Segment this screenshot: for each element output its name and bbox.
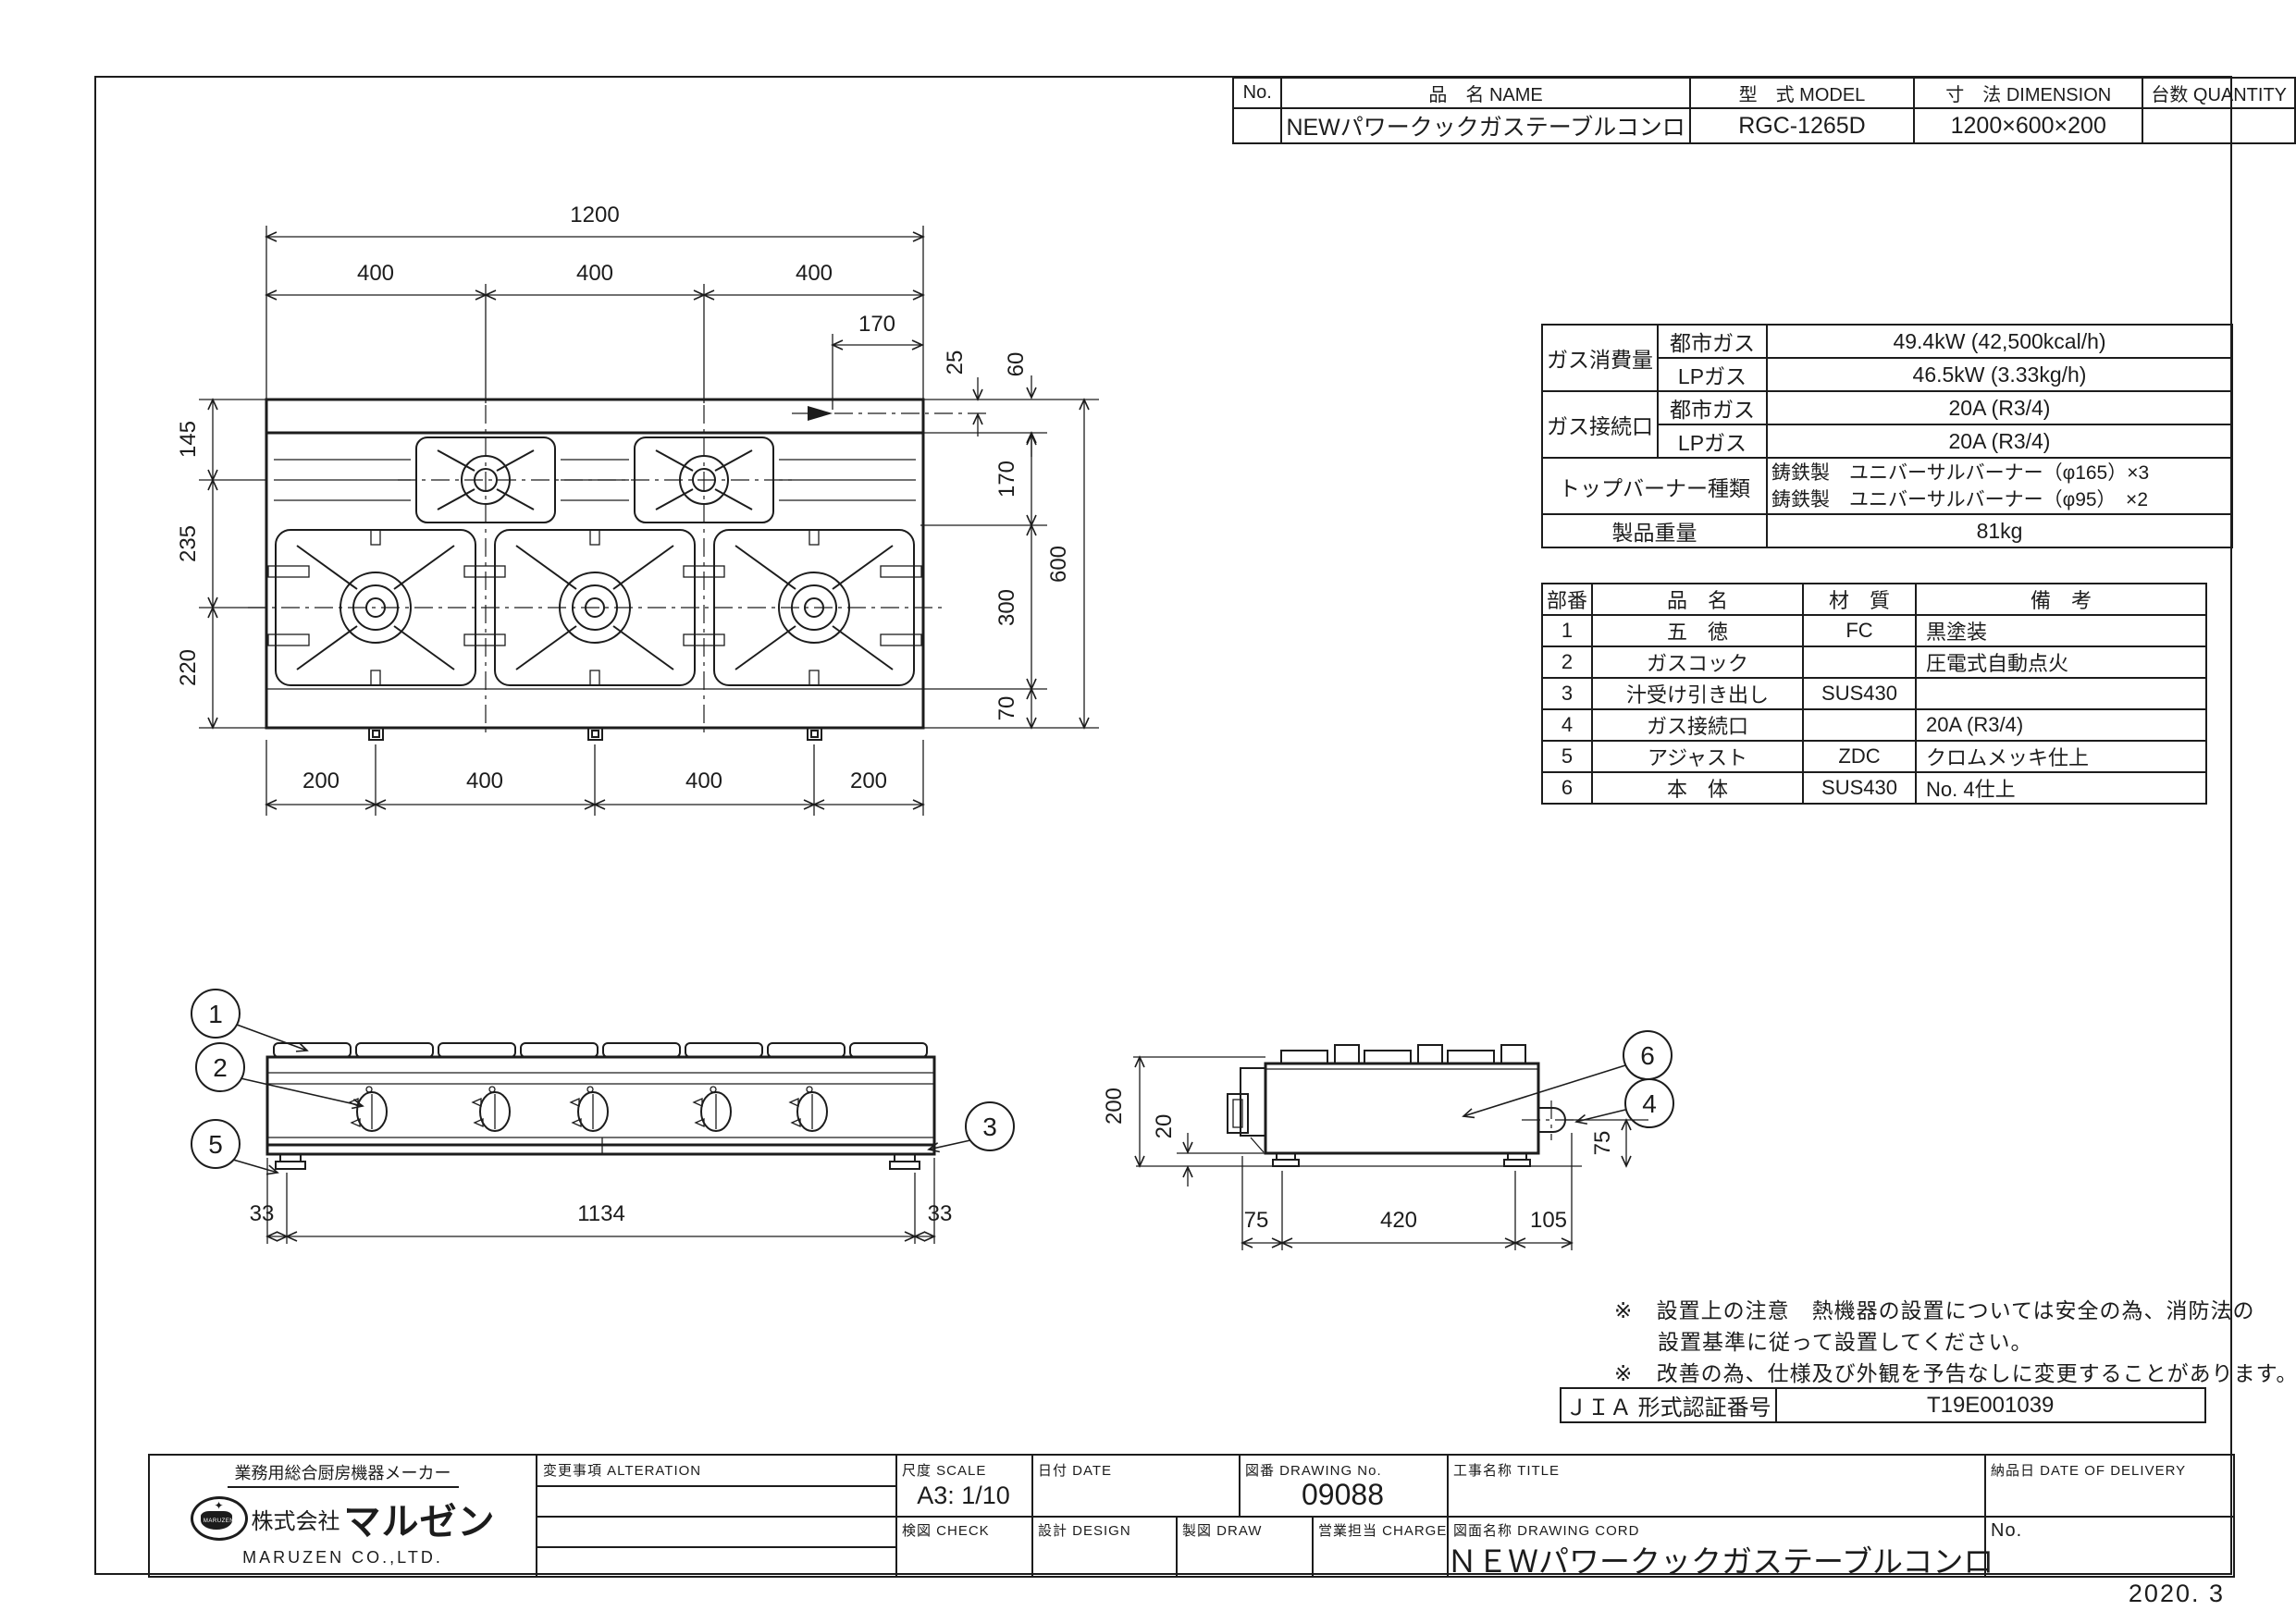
note-line-2: 設置基準に従って設置してください。	[1658, 1324, 2032, 1356]
dim-145: 145	[176, 421, 201, 458]
delivery-date-label: 納品日 DATE OF DELIVERY	[1991, 1460, 2186, 1480]
dim-25: 25	[943, 350, 968, 375]
draw-label: 製図 DRAW	[1182, 1520, 1262, 1540]
spec-city-gas-label: 都市ガス	[1658, 325, 1767, 358]
callout-1: 1	[191, 990, 307, 1051]
plan-dimensions: 1200 400 400 400 170 25 60 170 300 70 60…	[176, 203, 1099, 816]
parts-no: 6	[1542, 772, 1592, 804]
date-label: 日付 DATE	[1038, 1460, 1112, 1480]
parts-header-name: 品 名	[1592, 584, 1803, 615]
design-label: 設計 DESIGN	[1038, 1520, 1131, 1540]
model-table-quantity	[2142, 108, 2295, 143]
parts-remarks: クロムメッキ仕上	[1916, 741, 2206, 772]
dim-300: 300	[994, 589, 1019, 626]
control-knobs	[350, 1087, 827, 1131]
model-table-no	[1233, 108, 1281, 143]
dim-20: 20	[1152, 1114, 1177, 1139]
spec-city-gas-label2: 都市ガス	[1658, 391, 1767, 424]
dim-235: 235	[176, 525, 201, 562]
side-view: 200 20 75 75 420 105 6 4	[1102, 1031, 1673, 1250]
dim-60: 60	[1004, 352, 1029, 377]
dim-400c: 400	[796, 261, 833, 286]
model-table-header-dimension: 寸 法 DIMENSION	[1914, 78, 2142, 108]
logo-star-icon: ✦	[193, 1499, 245, 1512]
dim-1200: 1200	[570, 203, 619, 227]
dim-75b: 75	[1244, 1208, 1269, 1233]
dim-420: 420	[1380, 1208, 1417, 1233]
parts-material: SUS430	[1803, 678, 1916, 709]
dim-75r: 75	[1590, 1131, 1615, 1156]
parts-row: 4 ガス接続口 20A (R3/4)	[1542, 709, 2206, 741]
spec-consumption-lp-value: 46.5kW (3.33kg/h)	[1767, 358, 2232, 391]
parts-row: 5 アジャスト ZDC クロムメッキ仕上	[1542, 741, 2206, 772]
model-table-model: RGC-1265D	[1690, 108, 1914, 143]
dim-b200a: 200	[302, 768, 339, 793]
knob	[350, 1087, 387, 1131]
model-table: No. 品 名 NAME 型 式 MODEL 寸 法 DIMENSION 台数 …	[1232, 77, 2296, 144]
dim-b400a: 400	[466, 768, 503, 793]
spec-gas-connection-label: ガス接続口	[1542, 391, 1658, 458]
scale-label: 尺度 SCALE	[902, 1460, 986, 1480]
svg-text:3: 3	[982, 1113, 997, 1141]
dim-b400b: 400	[685, 768, 722, 793]
callout-3: 3	[929, 1102, 1014, 1150]
note-text: 設置上の注意 熱機器の設置については安全の為、消防法の	[1657, 1298, 2255, 1322]
company-block: 業務用総合厨房機器メーカー ✦ MARUZEN 株式会社 マルゼン MARUZE…	[150, 1456, 536, 1576]
parts-remarks: 黒塗装	[1916, 615, 2206, 646]
note-text: 設置基準に従って設置してください。	[1658, 1330, 2032, 1354]
parts-header-no: 部番	[1542, 584, 1592, 615]
spec-weight-value: 81kg	[1767, 514, 2232, 547]
parts-no: 1	[1542, 615, 1592, 646]
check-label: 検図 CHECK	[902, 1520, 990, 1540]
drawing-no-label: 図番 DRAWING No.	[1245, 1460, 1382, 1480]
spec-lp-gas-label2: LPガス	[1658, 424, 1767, 458]
parts-name: 五 徳	[1592, 615, 1803, 646]
model-table-header-quantity: 台数 QUANTITY	[2142, 78, 2295, 108]
svg-text:6: 6	[1640, 1041, 1655, 1070]
note-line-1: ※ 設置上の注意 熱機器の設置については安全の為、消防法の	[1614, 1293, 2255, 1324]
parts-row: 1 五 徳 FC 黒塗装	[1542, 615, 2206, 646]
svg-text:1: 1	[208, 1000, 223, 1028]
callout-2: 2	[196, 1043, 363, 1106]
company-tagline: 業務用総合厨房機器メーカー	[228, 1460, 459, 1488]
parts-name: アジャスト	[1592, 741, 1803, 772]
callout-6: 6	[1463, 1031, 1672, 1116]
drawing-sheet: { "sheet": { "issue_date": "2020. 3" }, …	[0, 0, 2296, 1623]
front-view: 33 1134 33 1 2 5 3	[191, 990, 1014, 1244]
parts-no: 5	[1542, 741, 1592, 772]
parts-row: 2 ガスコック 圧電式自動点火	[1542, 646, 2206, 678]
jia-label: ＪＩＡ 形式認証番号	[1561, 1388, 1776, 1422]
drawing-name-value: ＮＥＷパワークックガステーブルコンロ	[1447, 1537, 1984, 1581]
spec-consumption-city-value: 49.4kW (42,500kcal/h)	[1767, 325, 2232, 358]
spec-gas-consumption-label: ガス消費量	[1542, 325, 1658, 391]
logo-text: MARUZEN	[193, 1518, 245, 1524]
note-mark: ※	[1614, 1361, 1633, 1385]
spec-top-burner-label: トップバーナー種類	[1542, 458, 1767, 514]
dim-33r: 33	[928, 1201, 953, 1226]
dim-70: 70	[994, 696, 1019, 721]
parts-no: 4	[1542, 709, 1592, 741]
front-feet	[276, 1154, 920, 1169]
spec-connection-city-value: 20A (R3/4)	[1767, 391, 2232, 424]
dim-600: 600	[1046, 546, 1071, 583]
spec-weight-label: 製品重量	[1542, 514, 1767, 547]
parts-material: FC	[1803, 615, 1916, 646]
parts-no: 2	[1542, 646, 1592, 678]
spec-connection-lp-value: 20A (R3/4)	[1767, 424, 2232, 458]
parts-remarks: 圧電式自動点火	[1916, 646, 2206, 678]
model-table-dimension: 1200×600×200	[1914, 108, 2142, 143]
parts-row: 3 汁受け引き出し SUS430	[1542, 678, 2206, 709]
parts-remarks: No. 4仕上	[1916, 772, 2206, 804]
svg-text:4: 4	[1642, 1089, 1657, 1118]
side-feet	[1273, 1153, 1530, 1166]
sheet-no-label: No.	[1991, 1520, 2022, 1542]
dim-170-right: 170	[994, 461, 1019, 498]
work-title-label: 工事名称 TITLE	[1453, 1460, 1560, 1480]
parts-material: ZDC	[1803, 741, 1916, 772]
model-table-header-model: 型 式 MODEL	[1690, 78, 1914, 108]
charge-label: 営業担当 CHARGE	[1318, 1520, 1447, 1540]
company-name-en: MARUZEN CO.,LTD.	[150, 1548, 536, 1568]
knob	[473, 1087, 510, 1131]
spec-burner-line1: 鋳鉄製 ユニバーサルバーナー（φ165）×3	[1771, 460, 2228, 486]
parts-material	[1803, 646, 1916, 678]
callout-5: 5	[191, 1120, 278, 1173]
drawing-no-value: 09088	[1239, 1478, 1447, 1512]
spec-lp-gas-label: LPガス	[1658, 358, 1767, 391]
svg-text:5: 5	[208, 1130, 223, 1159]
note-mark: ※	[1614, 1298, 1633, 1322]
knob	[571, 1087, 608, 1131]
issue-date: 2020. 3	[2017, 1580, 2225, 1608]
parts-material	[1803, 709, 1916, 741]
dim-220: 220	[176, 649, 201, 686]
plan-view	[248, 400, 986, 740]
title-block: 業務用総合厨房機器メーカー ✦ MARUZEN 株式会社 マルゼン MARUZE…	[148, 1454, 2235, 1578]
jia-certification-table: ＪＩＡ 形式認証番号 T19E001039	[1560, 1387, 2206, 1423]
maruzen-logo-icon: ✦ MARUZEN	[191, 1496, 248, 1541]
model-table-header-name: 品 名 NAME	[1281, 78, 1689, 108]
model-table-name: NEWパワークックガステーブルコンロ	[1281, 108, 1689, 143]
spec-top-burner-value: 鋳鉄製 ユニバーサルバーナー（φ165）×3 鋳鉄製 ユニバーサルバーナー（φ9…	[1767, 458, 2232, 514]
svg-text:2: 2	[213, 1053, 228, 1082]
plan-feet-tabs	[369, 728, 821, 740]
gas-inlet-arrow	[792, 406, 986, 421]
rear-shelf-slats	[274, 460, 916, 500]
scale-value: A3: 1/10	[895, 1482, 1031, 1510]
parts-remarks	[1916, 678, 2206, 709]
dim-105: 105	[1530, 1208, 1567, 1233]
parts-row: 6 本 体 SUS430 No. 4仕上	[1542, 772, 2206, 804]
parts-material: SUS430	[1803, 772, 1916, 804]
dim-b200b: 200	[850, 768, 887, 793]
alteration-label: 変更事項 ALTERATION	[543, 1460, 701, 1480]
company-name: マルゼン	[344, 1492, 496, 1545]
dim-1134: 1134	[577, 1201, 625, 1226]
front-grates	[274, 1043, 927, 1057]
parts-header-remarks: 備 考	[1916, 584, 2206, 615]
note-line-3: ※ 改善の為、仕様及び外観を予告なしに変更することがあります。	[1614, 1356, 2296, 1387]
side-grate-tabs	[1281, 1045, 1525, 1064]
jia-number: T19E001039	[1776, 1388, 2205, 1422]
parts-name: 本 体	[1592, 772, 1803, 804]
parts-remarks: 20A (R3/4)	[1916, 709, 2206, 741]
dim-200: 200	[1102, 1088, 1127, 1125]
dim-400b: 400	[576, 261, 613, 286]
company-prefix: 株式会社	[252, 1503, 340, 1535]
note-text: 改善の為、仕様及び外観を予告なしに変更することがあります。	[1657, 1361, 2296, 1385]
spec-burner-line2: 鋳鉄製 ユニバーサルバーナー（φ95） ×2	[1771, 486, 2228, 513]
parts-name: ガスコック	[1592, 646, 1803, 678]
parts-name: ガス接続口	[1592, 709, 1803, 741]
knob	[694, 1087, 731, 1131]
parts-no: 3	[1542, 678, 1592, 709]
dim-33l: 33	[250, 1201, 275, 1226]
parts-table: 部番 品 名 材 質 備 考 1 五 徳 FC 黒塗装 2 ガスコック 圧電式自…	[1541, 583, 2207, 805]
parts-header-material: 材 質	[1803, 584, 1916, 615]
model-table-header-no: No.	[1233, 78, 1281, 108]
dim-170-top: 170	[858, 312, 895, 337]
dim-400a: 400	[357, 261, 394, 286]
knob	[790, 1087, 827, 1131]
parts-name: 汁受け引き出し	[1592, 678, 1803, 709]
spec-table: ガス消費量 都市ガス 49.4kW (42,500kcal/h) LPガス 46…	[1541, 324, 2233, 548]
